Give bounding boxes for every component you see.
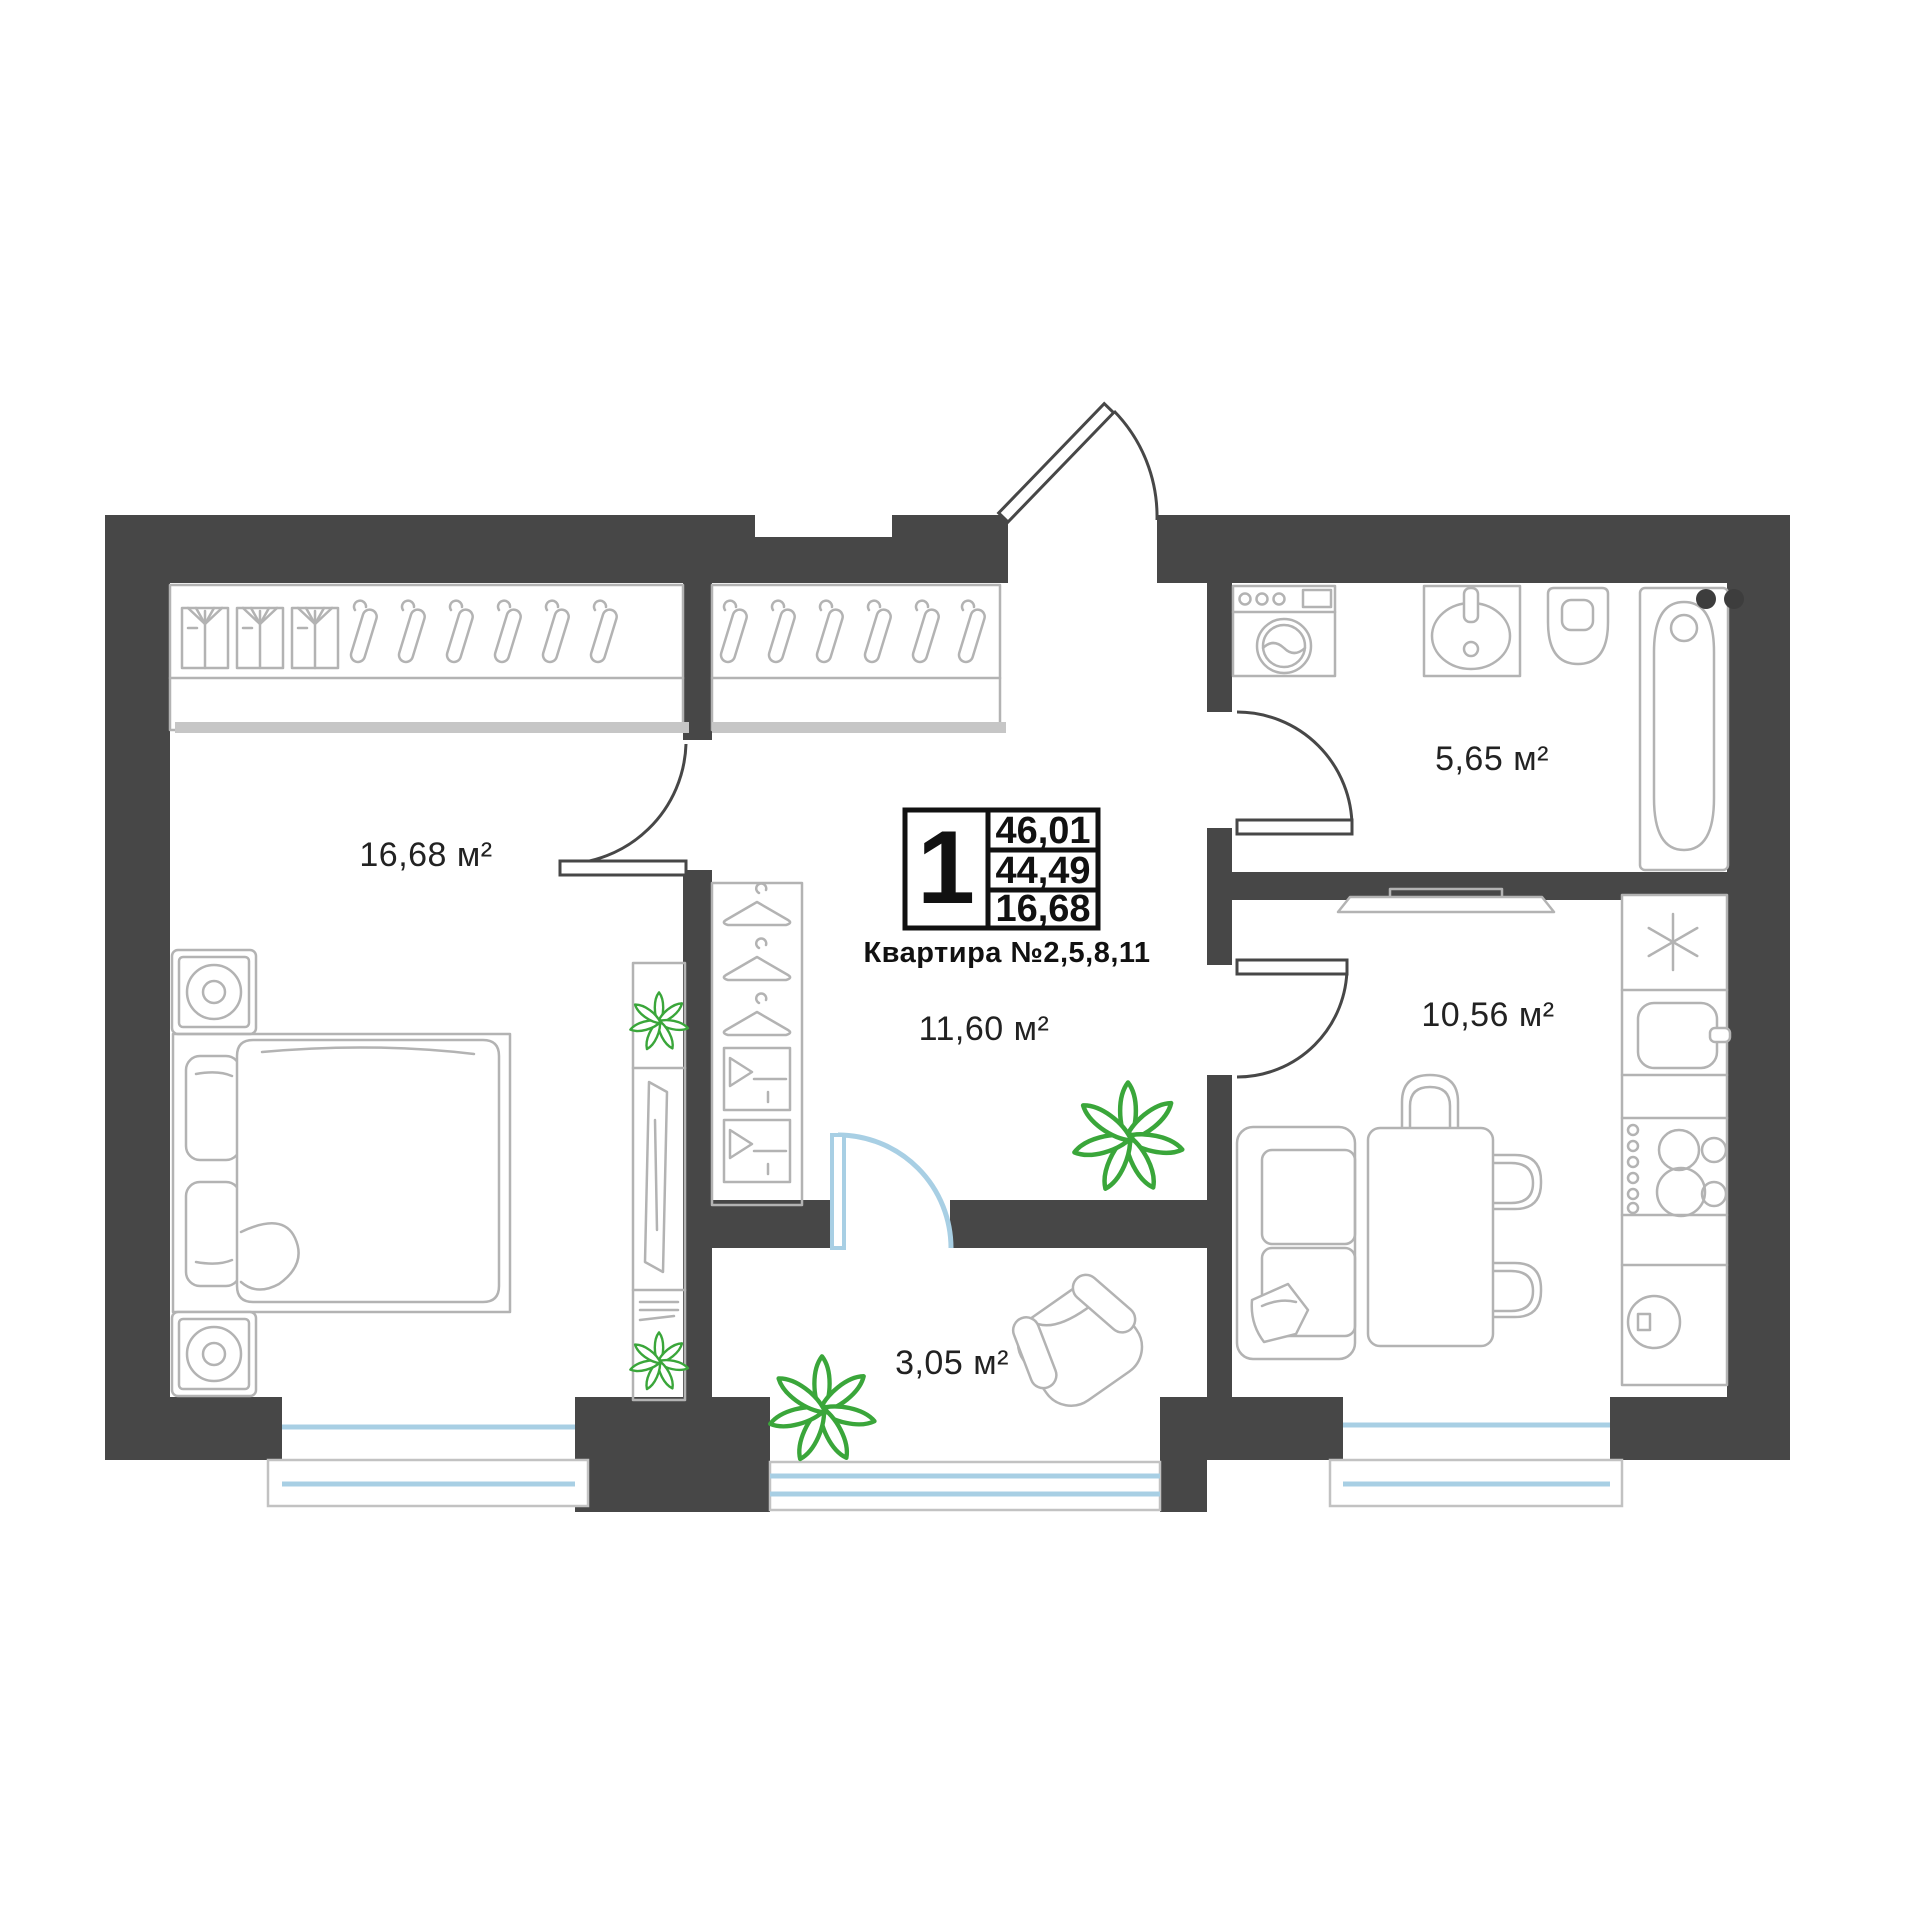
hanger-icon xyxy=(724,884,790,925)
floor-plan: 16,68 м² 5,65 м² 11,60 м² 10,56 м² 3,05 … xyxy=(0,0,1920,1920)
sofa-icon xyxy=(1237,1127,1355,1359)
bedroom-door-leaf xyxy=(560,861,686,875)
spotlight-icon xyxy=(1724,589,1744,609)
shirt-icon xyxy=(292,608,338,668)
wall-bedroom-lower xyxy=(683,870,712,1397)
hanger-icon xyxy=(724,939,790,980)
hanger-icon xyxy=(445,601,474,664)
hanger-icon xyxy=(767,601,796,664)
balcony-door-leaf xyxy=(832,1135,844,1248)
hanger-icon xyxy=(493,601,522,664)
kitchen-door-arc-icon xyxy=(1237,967,1347,1077)
apartment-info-block: 1 46,01 44,49 16,68 Квартира №2,5,8,11 xyxy=(863,810,1150,969)
armchair-icon xyxy=(994,1259,1161,1422)
toilet-icon xyxy=(1548,588,1608,664)
info-rooms-count: 1 xyxy=(917,810,975,926)
apartment-number-label: Квартира №2,5,8,11 xyxy=(863,937,1150,969)
plant-icon xyxy=(629,1332,689,1390)
entrance-door-arc-icon xyxy=(1114,411,1157,520)
label-bathroom-area: 5,65 м² xyxy=(1435,740,1549,778)
wall-bottom-1 xyxy=(105,1397,282,1460)
bathroom-door xyxy=(1237,712,1352,834)
entrance-door-leaf xyxy=(999,404,1114,522)
window-sill-balcony xyxy=(770,1462,1160,1510)
balcony-door-arc-icon xyxy=(838,1135,951,1248)
entrance-door xyxy=(999,404,1157,522)
hanger-icon xyxy=(815,601,844,664)
hanger-icon xyxy=(541,601,570,664)
shirt-icon xyxy=(237,608,283,668)
hanger-icon xyxy=(863,601,892,664)
info-living-area: 44,49 xyxy=(995,850,1090,892)
hanger-icon xyxy=(911,601,940,664)
hanger-icon xyxy=(724,994,790,1035)
bedroom-wardrobe-icon xyxy=(170,585,689,733)
info-room-area: 16,68 xyxy=(995,888,1090,930)
hanger-icon xyxy=(397,601,426,664)
wall-top-right xyxy=(1157,515,1790,583)
chair-icon xyxy=(1491,1263,1541,1317)
hanger-icon xyxy=(719,601,748,664)
plant-icon xyxy=(629,992,689,1050)
bedroom-door xyxy=(560,744,686,875)
wall-balcony-right xyxy=(950,1200,1207,1248)
kitchen-door-leaf xyxy=(1237,960,1347,974)
shirt-icon xyxy=(182,608,228,668)
drawer-icon xyxy=(724,1048,790,1110)
hallway-wardrobe-icon xyxy=(712,585,1006,733)
wall-balcony-left xyxy=(712,1200,838,1248)
hanger-icon xyxy=(589,601,618,664)
wall-bottom-pillar-left xyxy=(575,1397,770,1512)
bathroom-door-arc-icon xyxy=(1237,712,1352,827)
plant-icon xyxy=(1072,1083,1184,1192)
hanger-icon xyxy=(957,601,986,664)
wall-kitchen-left xyxy=(1207,1075,1232,1397)
wall-bedroom-upper xyxy=(683,583,712,740)
wall-between-doors xyxy=(1207,828,1232,965)
nightstand-bottom xyxy=(172,1312,256,1396)
bed-icon xyxy=(173,1034,510,1312)
bath-sink-icon xyxy=(1424,586,1520,676)
label-kitchen-area: 10,56 м² xyxy=(1421,996,1554,1034)
kitchen-counter xyxy=(1622,895,1730,1385)
wall-top-left xyxy=(105,515,1008,583)
wall-bottom-3 xyxy=(1610,1397,1790,1460)
pillow-icon xyxy=(186,1182,240,1286)
info-total-area: 46,01 xyxy=(995,810,1090,852)
label-balcony-area: 3,05 м² xyxy=(895,1344,1009,1382)
windows xyxy=(268,1425,1622,1510)
hanger-icon xyxy=(349,601,378,664)
wall-bottom-2 xyxy=(1160,1397,1343,1460)
mini-closet-icon xyxy=(712,883,802,1205)
wall-right xyxy=(1727,515,1790,1460)
nightstand-top xyxy=(172,950,256,1034)
bedroom xyxy=(170,585,689,1400)
kitchen-door xyxy=(1237,960,1347,1077)
chair-icon xyxy=(1491,1155,1541,1209)
tv-stand-icon xyxy=(629,963,689,1400)
drawer-icon xyxy=(724,1120,790,1182)
wall-bottom-pillar-right xyxy=(1160,1460,1207,1512)
bathtub-icon xyxy=(1640,588,1728,870)
spotlight-icon xyxy=(1696,589,1716,609)
plant-icon xyxy=(768,1356,876,1462)
label-hallway-area: 11,60 м² xyxy=(919,1010,1050,1048)
balcony-door xyxy=(832,1135,951,1248)
bedroom-door-arc-icon xyxy=(562,744,686,864)
label-bedroom-area: 16,68 м² xyxy=(359,836,492,874)
washing-machine-icon xyxy=(1233,586,1335,676)
duvet-icon xyxy=(237,1040,499,1302)
wall-left xyxy=(105,515,170,1460)
dining-table-icon xyxy=(1368,1075,1541,1346)
bathroom-door-leaf xyxy=(1237,820,1352,834)
wall-bath-upper xyxy=(1207,583,1232,712)
